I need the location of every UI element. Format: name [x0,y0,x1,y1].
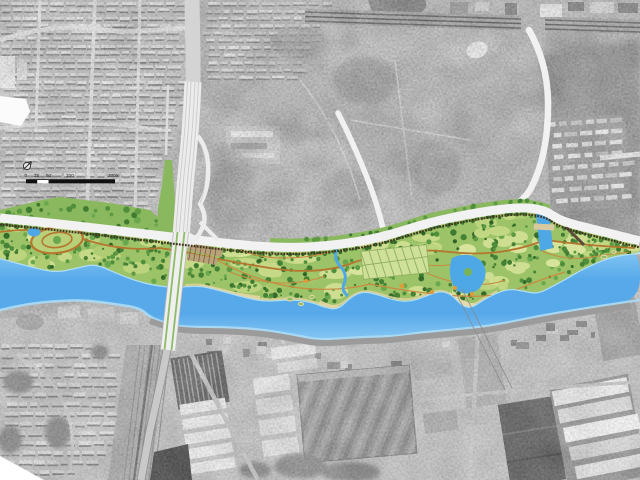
svg-text:100: 100 [66,173,74,178]
svg-text:200m: 200m [108,173,120,178]
svg-text:25: 25 [34,173,40,178]
svg-text:50: 50 [46,173,52,178]
svg-text:0: 0 [25,173,28,178]
